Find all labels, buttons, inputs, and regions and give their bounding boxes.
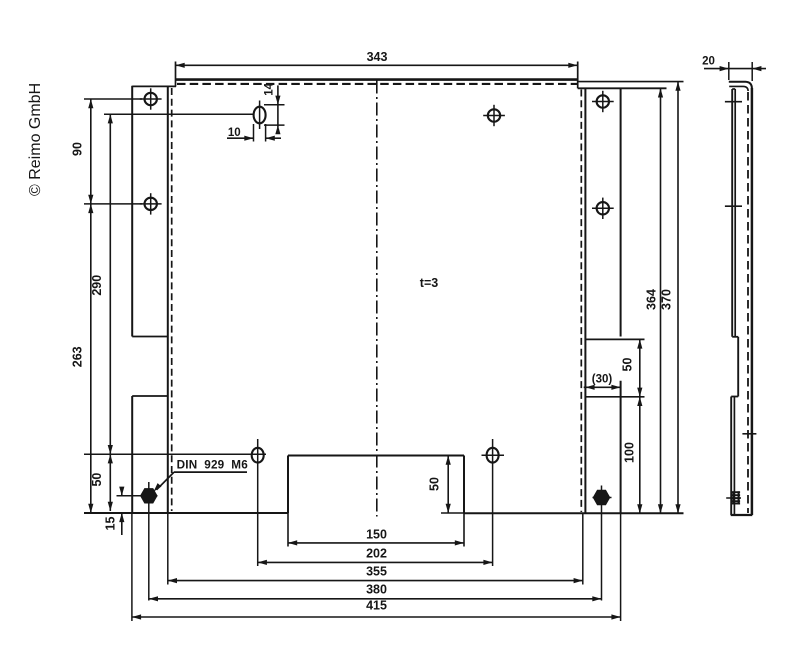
svg-text:370: 370 — [660, 289, 674, 310]
svg-text:50: 50 — [90, 473, 104, 487]
svg-text:50: 50 — [621, 358, 635, 372]
svg-text:364: 364 — [645, 289, 659, 310]
svg-text:90: 90 — [70, 142, 84, 156]
svg-text:263: 263 — [70, 346, 84, 367]
svg-text:290: 290 — [90, 275, 104, 296]
svg-text:380: 380 — [366, 583, 387, 597]
svg-text:15: 15 — [104, 517, 118, 531]
svg-text:100: 100 — [623, 442, 637, 463]
svg-text:10: 10 — [228, 127, 241, 139]
svg-text:© Reimo GmbH: © Reimo GmbH — [27, 83, 44, 196]
svg-text:t=3: t=3 — [420, 276, 438, 290]
svg-text:DIN 929 M6: DIN 929 M6 — [177, 458, 249, 471]
svg-text:355: 355 — [366, 565, 387, 579]
svg-text:14: 14 — [263, 82, 275, 95]
svg-text:415: 415 — [366, 599, 387, 613]
svg-text:343: 343 — [367, 50, 388, 64]
svg-text:50: 50 — [428, 477, 442, 491]
svg-text:150: 150 — [366, 528, 387, 542]
svg-text:(30): (30) — [592, 374, 613, 386]
svg-text:20: 20 — [702, 56, 715, 68]
svg-text:202: 202 — [366, 547, 387, 561]
